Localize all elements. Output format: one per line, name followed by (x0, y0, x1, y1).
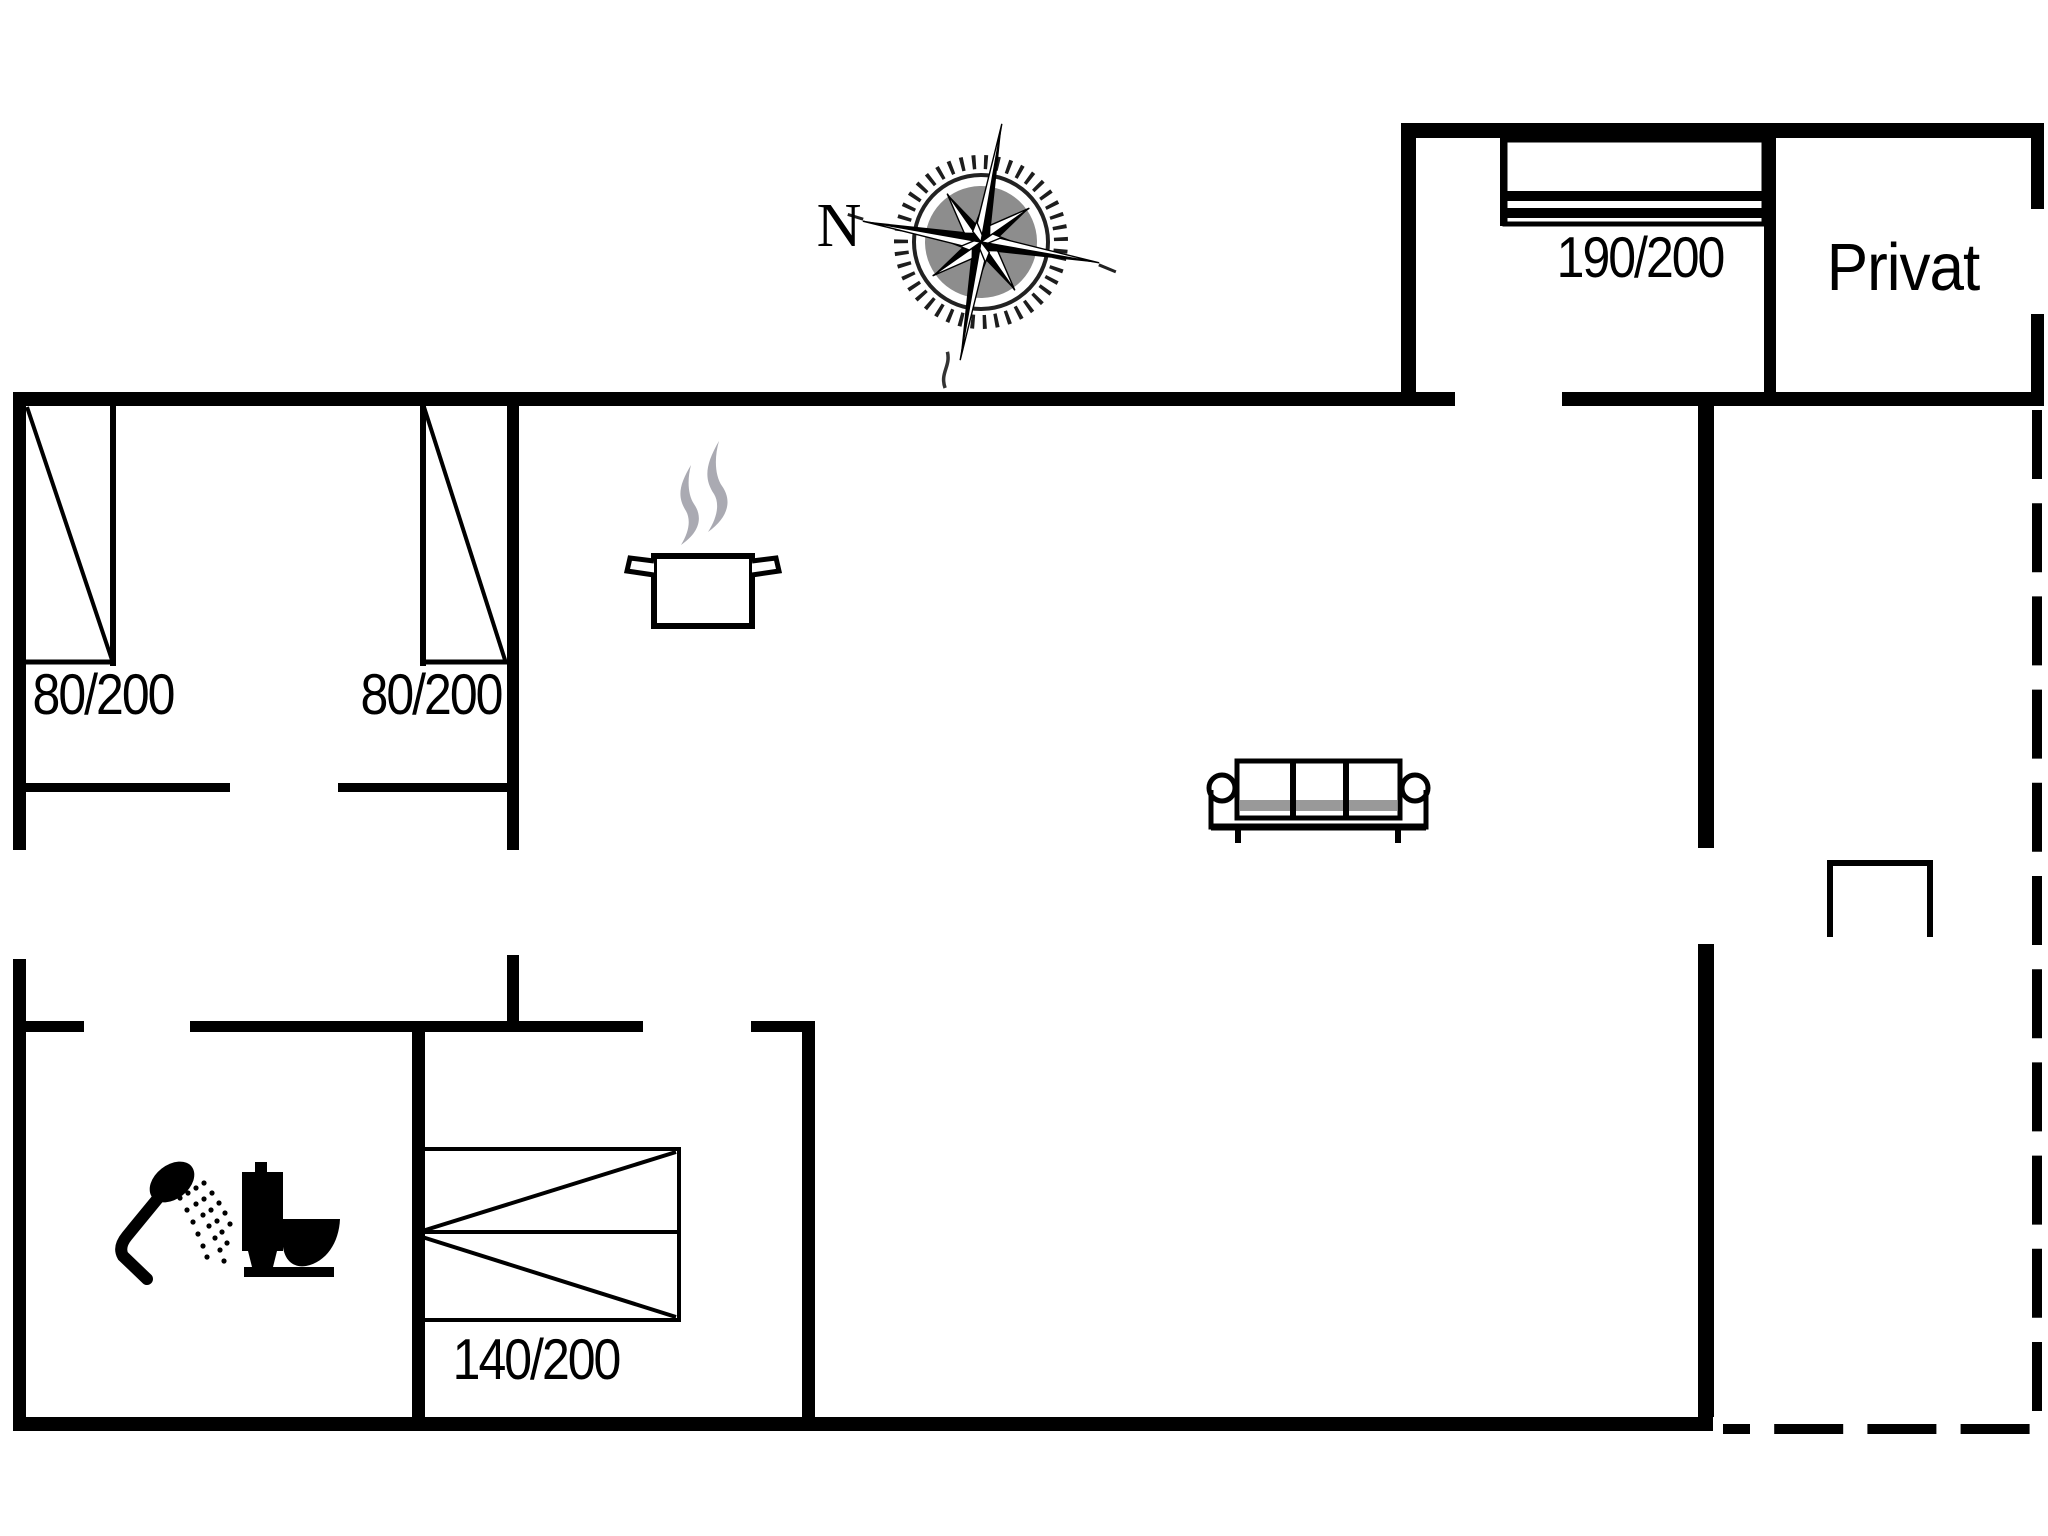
svg-text:140/200: 140/200 (453, 1328, 620, 1392)
svg-text:N: N (817, 192, 862, 260)
svg-text:80/200: 80/200 (361, 663, 502, 727)
svg-text:190/200: 190/200 (1557, 226, 1724, 290)
svg-text:Privat: Privat (1827, 230, 1981, 304)
svg-text:80/200: 80/200 (33, 663, 174, 727)
